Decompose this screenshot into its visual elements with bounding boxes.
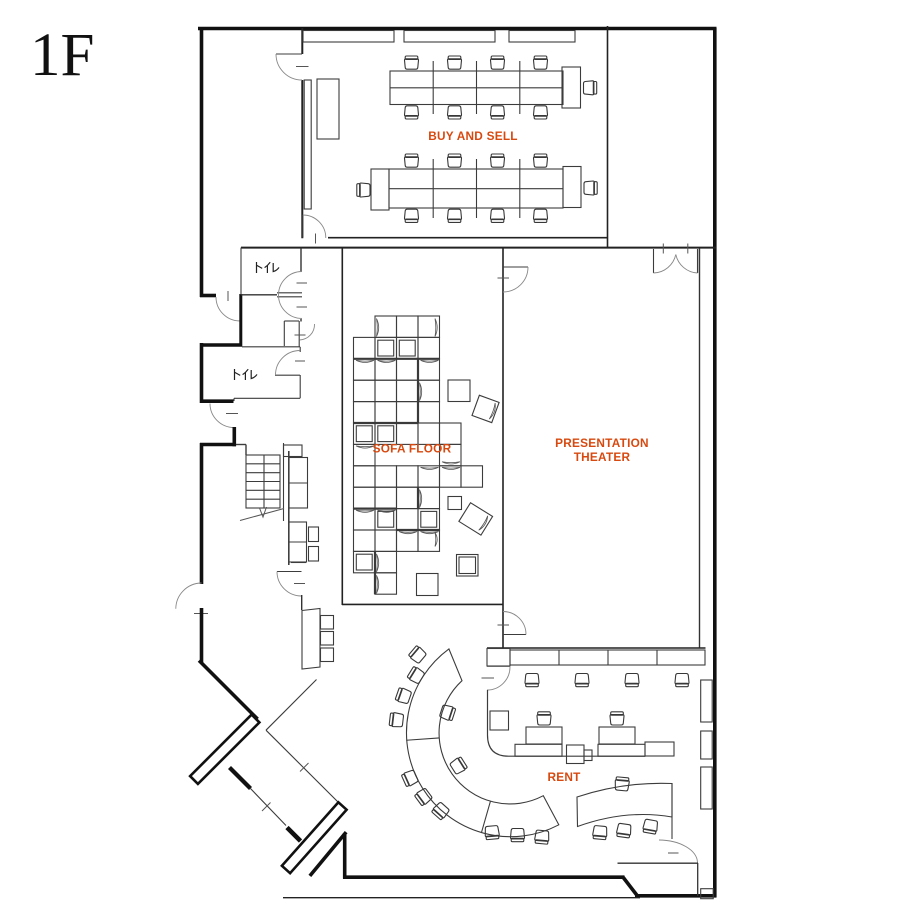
svg-text:THEATER: THEATER [574,450,631,464]
svg-text:BUY AND SELL: BUY AND SELL [428,129,518,143]
svg-text:SOFA FLOOR: SOFA FLOOR [373,442,452,456]
svg-text:PRESENTATION: PRESENTATION [555,436,649,450]
svg-text:1F: 1F [30,22,94,89]
svg-text:RENT: RENT [547,770,581,784]
